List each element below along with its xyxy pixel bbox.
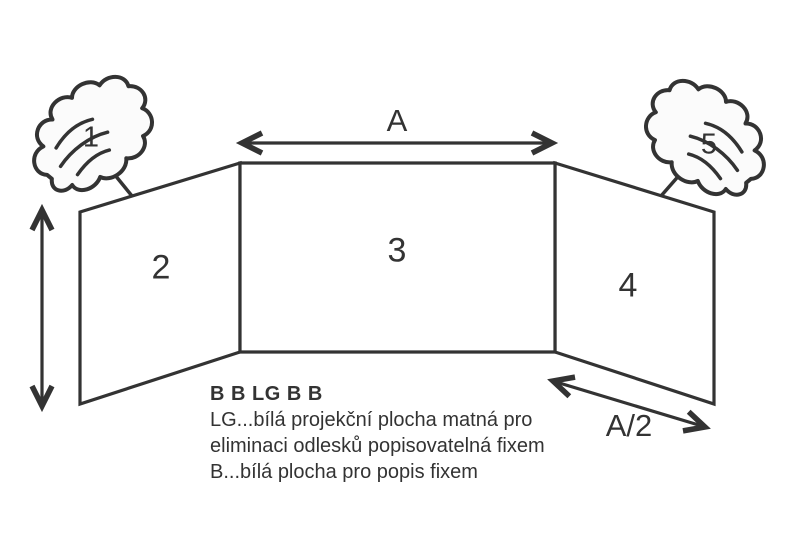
- panel-right-shape: [555, 163, 714, 404]
- hand-glove-left: [11, 59, 173, 209]
- folding-board-diagram: [0, 0, 800, 533]
- panel-center-shape: [240, 163, 555, 352]
- dimension-arrow-height: [32, 210, 52, 406]
- diagram-canvas: A A/2 1 5 2 3 4 B B LG B B LG...bílá pro…: [0, 0, 800, 533]
- panel-left-shape: [80, 163, 240, 404]
- dimension-arrow-a: [242, 133, 552, 153]
